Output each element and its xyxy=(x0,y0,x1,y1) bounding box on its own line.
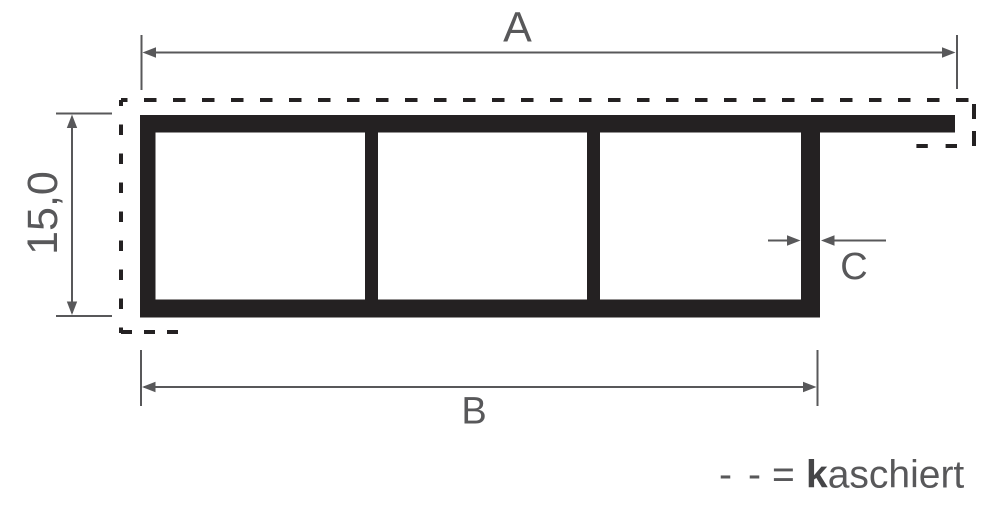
svg-text:15,0: 15,0 xyxy=(19,171,67,255)
svg-text:C: C xyxy=(840,246,867,288)
svg-text:- - = kaschiert: - - = kaschiert xyxy=(719,454,964,497)
svg-text:B: B xyxy=(461,391,486,433)
svg-text:A: A xyxy=(503,4,532,52)
